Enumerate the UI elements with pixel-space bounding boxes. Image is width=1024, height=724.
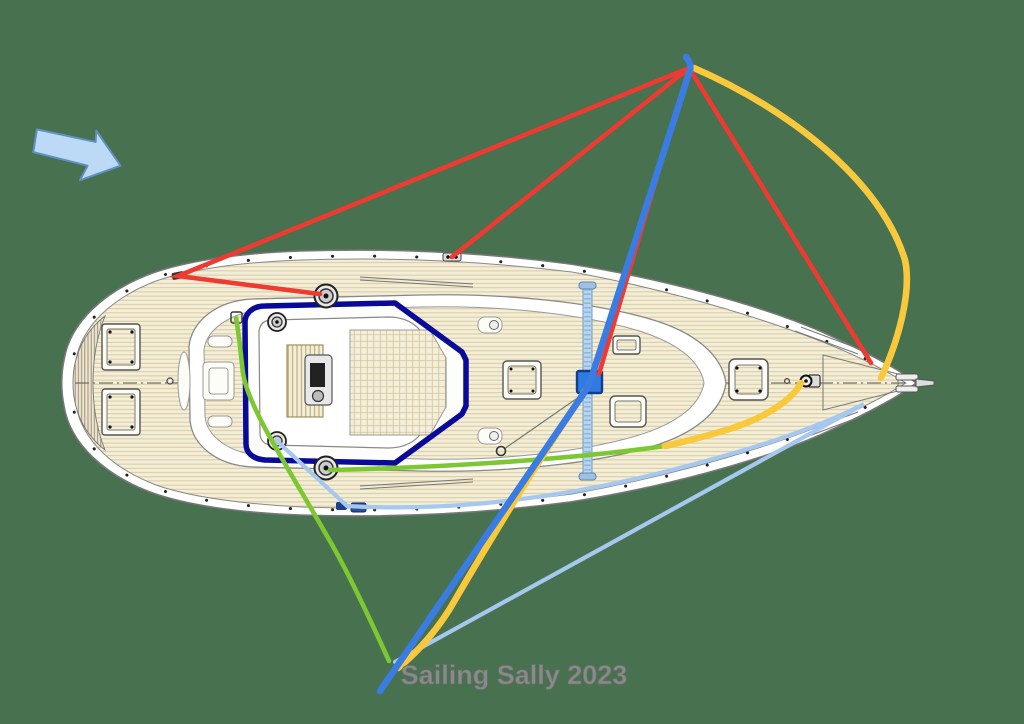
cockpit-bench [350,330,446,435]
helm-seat [178,352,190,410]
dorade-vent-starboard [478,428,502,444]
mid-hatch-starboard [610,396,646,427]
caption-title: Sailing Sally 2023 [401,660,628,690]
winch-port-coaming [268,313,286,331]
sailboat-rigging-diagram: Sailing Sally 2023 [0,0,1024,724]
dorade-vent-port [478,317,502,333]
companionway-hatch [503,361,541,399]
aft-hatch-port [102,324,140,370]
aft-hatch-starboard [102,389,140,435]
backstay-fitting [167,378,173,384]
foredeck-hatch [729,359,768,400]
diagram-canvas: Sailing Sally 2023 [0,0,1024,724]
mid-hatch-port [613,336,640,354]
foot-rail-starboard [208,416,232,427]
steering-pedestal [305,355,332,405]
foot-rail-port [208,336,232,347]
helm-console-inner [209,368,228,394]
